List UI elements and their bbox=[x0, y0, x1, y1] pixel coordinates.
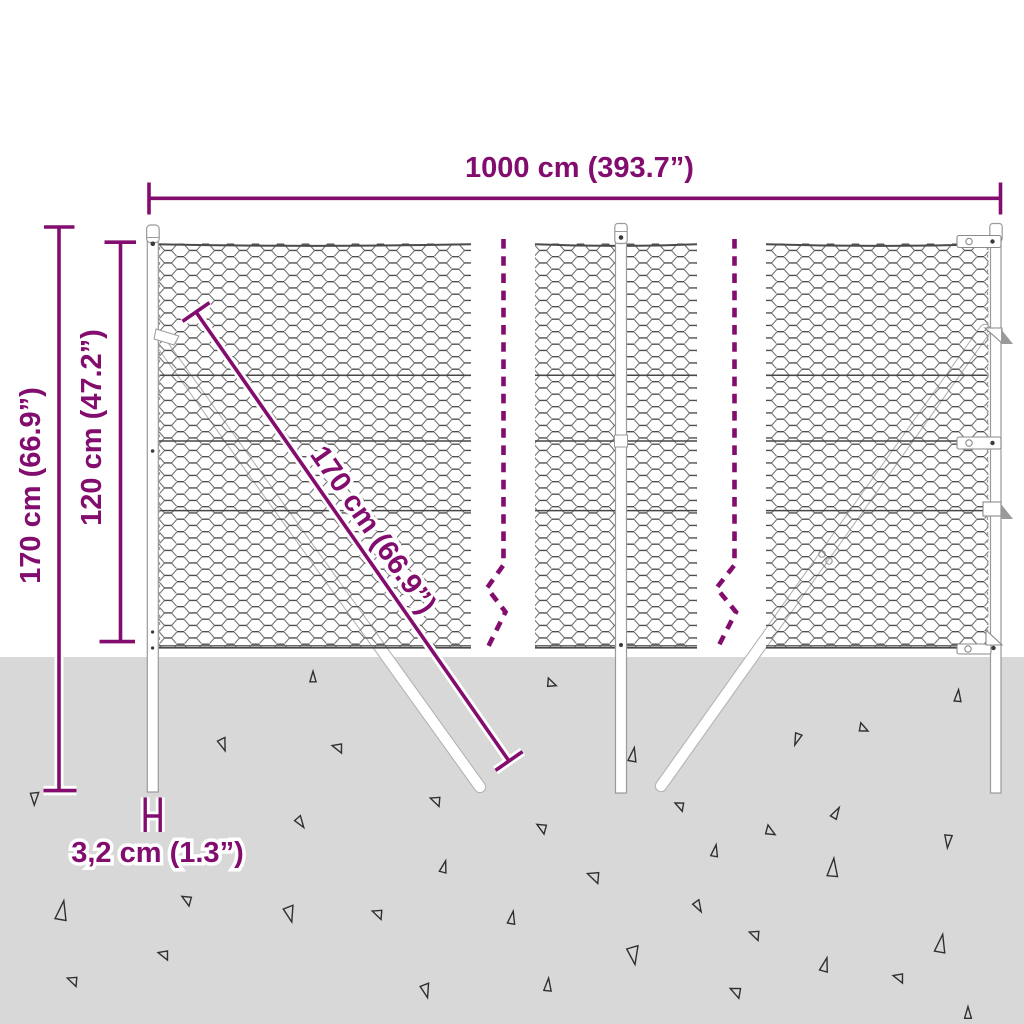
svg-text:1000 cm (393.7”): 1000 cm (393.7”) bbox=[465, 152, 694, 184]
svg-text:120 cm (47.2”): 120 cm (47.2”) bbox=[76, 329, 108, 526]
svg-text:3,2 cm (1.3”): 3,2 cm (1.3”) bbox=[71, 837, 243, 869]
svg-text:170 cm (66.9”): 170 cm (66.9”) bbox=[15, 387, 47, 584]
